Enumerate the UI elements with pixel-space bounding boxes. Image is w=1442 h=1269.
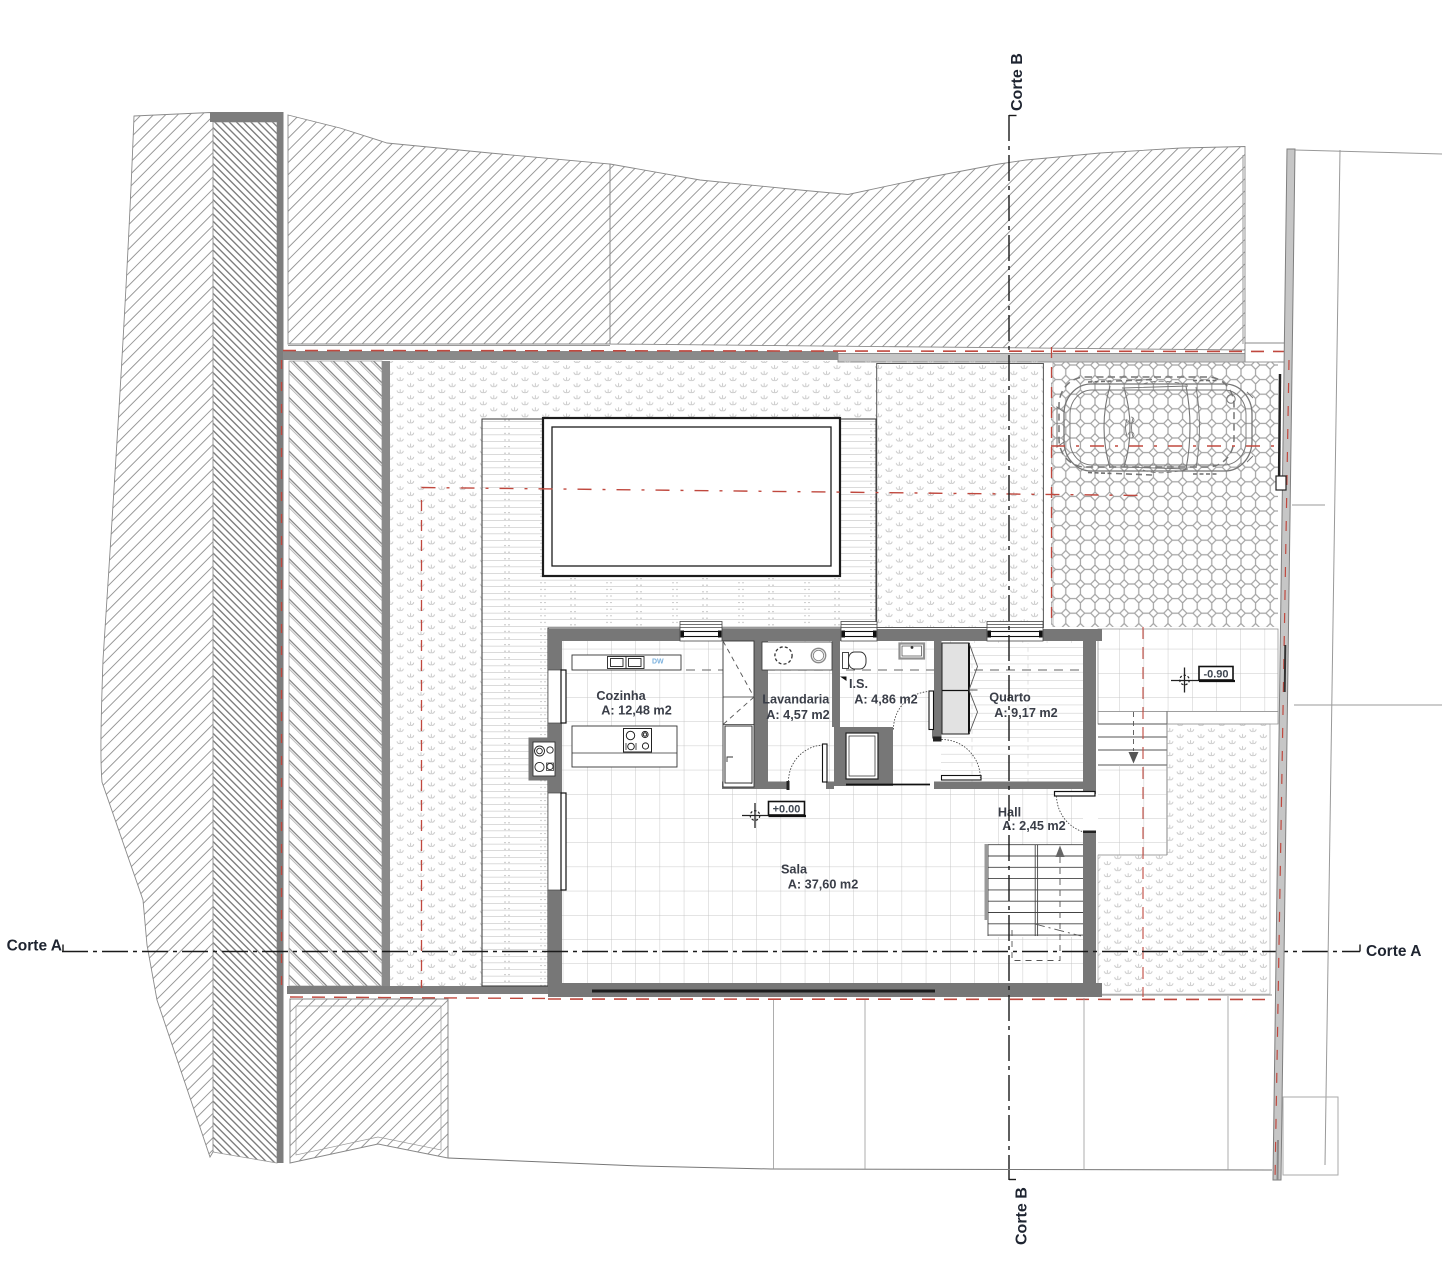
- svg-text:Sala: Sala: [781, 863, 808, 877]
- svg-text:DW: DW: [652, 659, 664, 666]
- svg-text:I.S.: I.S.: [849, 677, 868, 691]
- svg-text:Corte B: Corte B: [1009, 53, 1026, 111]
- svg-text:-0.90: -0.90: [1203, 669, 1228, 681]
- svg-text:A: 4,86 m2: A: 4,86 m2: [854, 693, 917, 707]
- svg-text:A: 9,17 m2: A: 9,17 m2: [994, 706, 1057, 720]
- svg-text:Corte B: Corte B: [1014, 1187, 1031, 1245]
- svg-text:Cozinha: Cozinha: [596, 689, 646, 703]
- svg-text:A: 2,45 m2: A: 2,45 m2: [1002, 819, 1065, 833]
- svg-text:Quarto: Quarto: [989, 691, 1031, 705]
- svg-text:Lavandaria: Lavandaria: [762, 693, 830, 707]
- svg-text:A: 4,57 m2: A: 4,57 m2: [766, 708, 829, 722]
- svg-text:A: 37,60 m2: A: 37,60 m2: [788, 878, 859, 892]
- svg-text:Corte A: Corte A: [1366, 943, 1421, 960]
- svg-text:A: 12,48 m2: A: 12,48 m2: [601, 704, 672, 718]
- svg-text:+0.00: +0.00: [773, 804, 801, 816]
- svg-text:Corte A: Corte A: [7, 938, 62, 955]
